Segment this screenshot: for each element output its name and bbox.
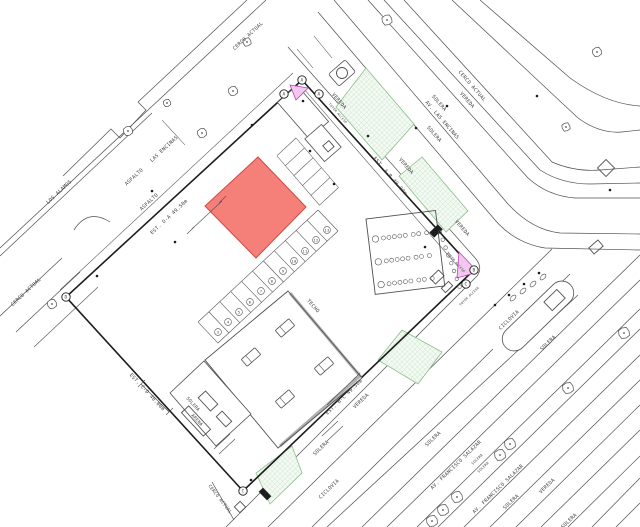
parking-number: 6: [247, 299, 254, 306]
street-label: CERCO ACTUAL: [206, 484, 233, 516]
site-plan-page: CERCO ACTUALLAS ENCINASASFALTOASFALTOLOS…: [0, 0, 640, 527]
tree-icon: [562, 123, 570, 131]
point-marker: [251, 124, 254, 127]
street-label: VEREDA: [458, 91, 475, 110]
svg-text:8: 8: [271, 279, 274, 284]
parking-number: 4: [225, 319, 232, 326]
svg-text:6: 6: [249, 300, 252, 305]
parking-number: 9: [280, 268, 287, 275]
tree-icon: [123, 126, 132, 135]
point-markers: [96, 95, 612, 482]
point-marker: [609, 189, 612, 192]
point-marker: [250, 479, 253, 482]
svg-text:12: 12: [313, 238, 318, 243]
svg-text:A: A: [283, 92, 286, 98]
svg-text:11: 11: [302, 249, 308, 254]
tree-icon: [438, 505, 449, 516]
tree-icon: [382, 15, 392, 25]
tree-icon: [47, 299, 56, 308]
point-marker: [523, 283, 526, 286]
tree-icon: [197, 128, 206, 137]
point-marker: [508, 294, 511, 297]
svg-text:3: 3: [217, 330, 220, 335]
svg-text:13: 13: [324, 228, 329, 233]
parking-number: 7: [258, 288, 265, 295]
svg-text:5: 5: [238, 310, 241, 315]
bush-icon: [519, 287, 527, 295]
street-label: CERCO ACTUAL: [232, 21, 265, 52]
point-marker: [415, 127, 418, 130]
tree-icon: [452, 492, 463, 503]
tree-icon: [427, 516, 438, 527]
vertex-marker: C: [462, 280, 470, 288]
point-marker: [424, 246, 427, 249]
totem-label: TOTEM ACCESO: [459, 286, 481, 307]
svg-text:7: 7: [260, 289, 263, 294]
tree-symbols: [47, 15, 629, 527]
point-marker: [151, 190, 154, 193]
svg-text:D: D: [65, 295, 68, 301]
svg-text:B: B: [473, 268, 476, 274]
street-label: SOLERA: [477, 460, 490, 473]
point-marker: [302, 100, 305, 103]
street-label: ASFALTO: [139, 192, 160, 212]
street-label: SOLERA: [424, 430, 442, 448]
svg-text:C: C: [465, 282, 468, 288]
parking-number: 10: [291, 258, 298, 265]
point-marker: [309, 150, 312, 153]
vertex-marker: A: [315, 90, 323, 98]
parking-number: 12: [313, 237, 320, 244]
svg-text:10: 10: [291, 259, 297, 264]
parking-number: 3: [215, 329, 222, 336]
svg-text:A: A: [318, 92, 321, 98]
parking-number: 13: [324, 227, 331, 234]
green-patch: [336, 68, 414, 160]
dimension-label: EST. D-A 49.50m: [149, 198, 189, 236]
tree-icon: [592, 47, 601, 56]
tree-icon: [619, 328, 630, 339]
vertex-marker: D: [62, 293, 70, 301]
point-marker: [96, 275, 99, 278]
point-marker: [367, 135, 370, 138]
point-marker: [494, 304, 497, 307]
point-marker: [536, 95, 539, 98]
parking-number: 5: [236, 309, 243, 316]
vertex-marker: B: [470, 266, 478, 274]
site-plan-svg: CERCO ACTUALLAS ENCINASASFALTOASFALTOLOS…: [0, 0, 640, 527]
street-label: VEREDA: [538, 477, 556, 495]
svg-text:C: C: [242, 489, 245, 495]
tree-icon: [228, 86, 237, 95]
parking-number: 8: [269, 278, 276, 285]
dimension-label: EST. C-D 40.00m: [128, 372, 166, 412]
point-marker: [333, 183, 336, 186]
street-label: SOLERA: [502, 493, 520, 511]
svg-text:A: A: [301, 78, 304, 84]
street-label: VEREDA: [453, 219, 470, 238]
svg-text:4: 4: [227, 320, 230, 325]
vertex-marker: A: [280, 90, 288, 98]
svg-text:9: 9: [282, 269, 285, 274]
bush-icon: [539, 273, 547, 281]
street-label: VEREDA: [352, 392, 370, 410]
street-label: CICLOVIA: [318, 478, 341, 500]
street-label: SOLERA: [539, 334, 557, 352]
tree-icon: [505, 439, 516, 450]
point-marker: [174, 241, 177, 244]
tree-icon: [163, 99, 170, 106]
street-label: ASFALTO: [124, 167, 145, 187]
parking-number: 11: [302, 248, 309, 255]
street-label: LOS ALAMOS: [45, 179, 73, 206]
point-marker: [538, 272, 541, 275]
vertex-marker: C: [239, 487, 247, 495]
street-label: CERCO ACTUAL: [10, 277, 43, 308]
street-label: LAS ENCINAS: [149, 135, 179, 164]
tree-icon: [563, 383, 574, 394]
tree-icon: [495, 450, 506, 461]
bush-icon: [529, 280, 537, 288]
street-label: SOLERA: [312, 439, 330, 457]
vertex-marker: A: [298, 76, 306, 84]
street-label: AV. FRANCISCO SALAZAR: [430, 439, 484, 491]
green-patch: [378, 330, 442, 384]
